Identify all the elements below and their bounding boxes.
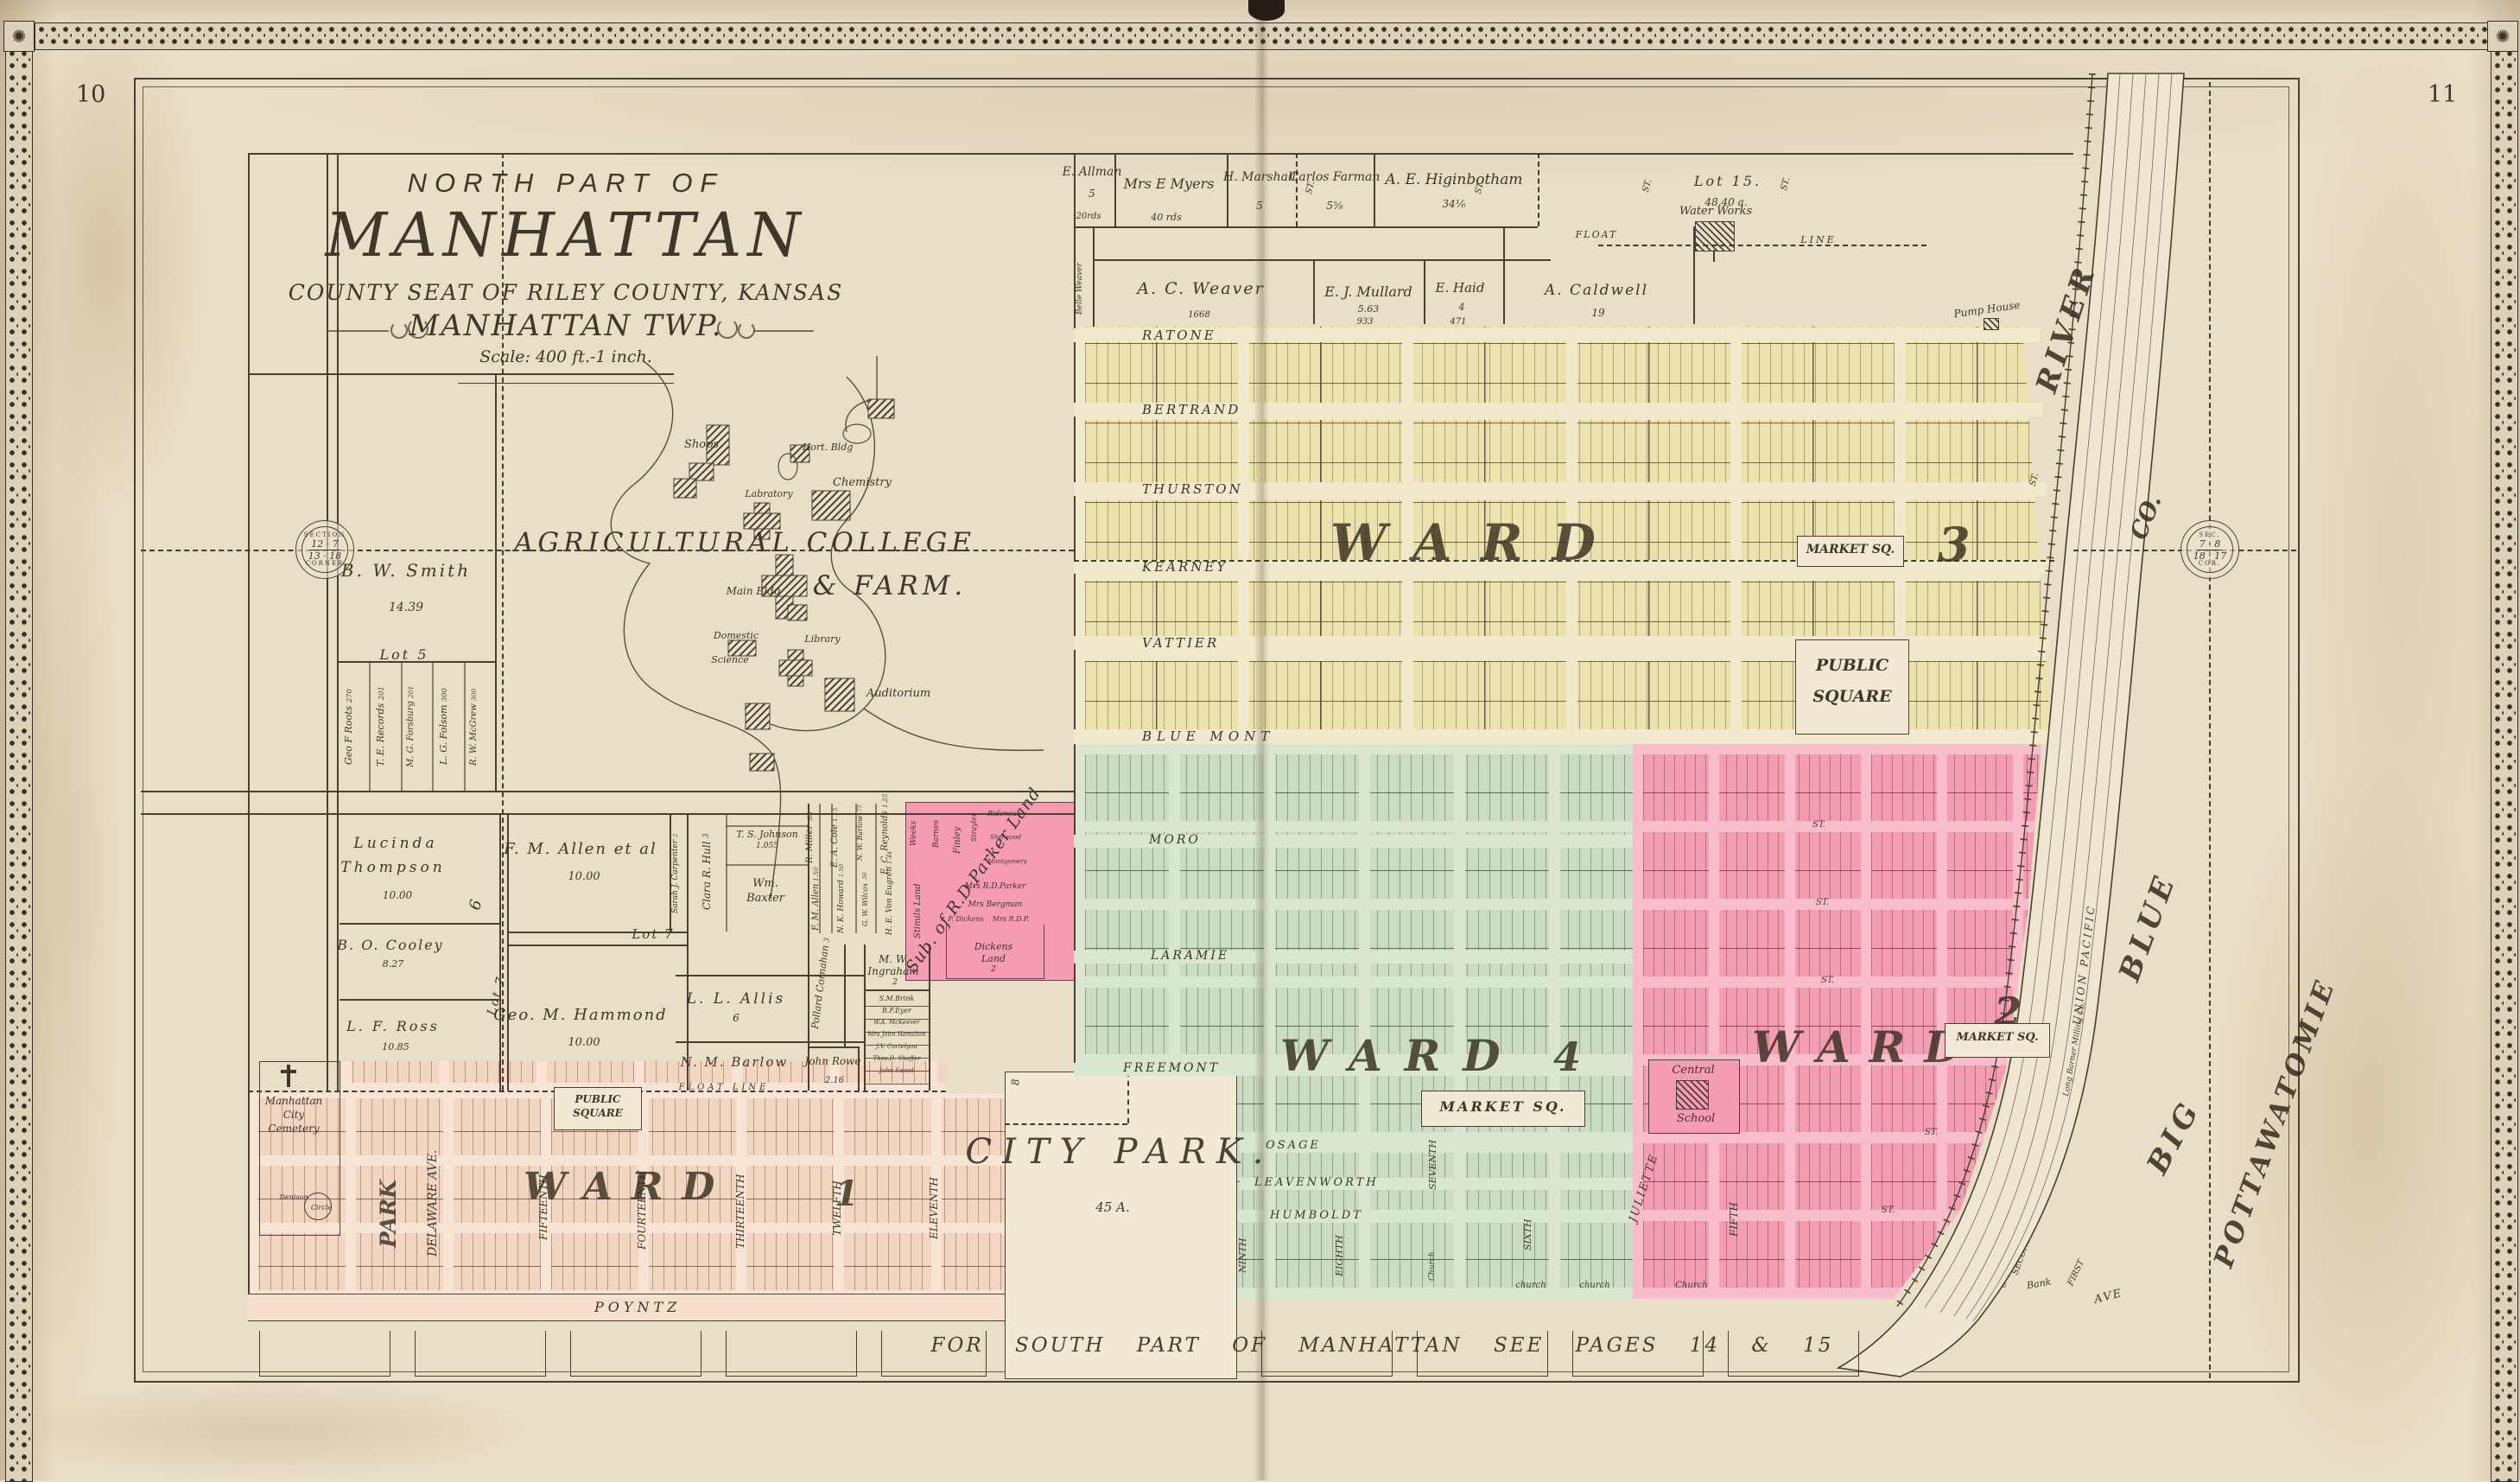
street-bertrand: BERTRAND [1142,402,1241,417]
parcel-ac-weaver: A. C. Weaver [1137,281,1264,298]
park-notch-h [1005,1123,1127,1125]
market-sq-text: MARKET SQ. [1422,1098,1584,1115]
campus-drives [611,356,1044,899]
south-ghost-block [259,1331,390,1377]
float-line-label: FLOAT LINE [679,1084,770,1093]
bldg-labratory: Labratory [745,489,792,499]
farm-divider-dashed [1538,153,1539,226]
flourish-icon [408,318,428,339]
flourish-icon [738,321,755,339]
bldg-chemistry: Chemistry [833,477,892,489]
parcel-farman: Carlos Farman [1290,171,1381,184]
row2-north [1093,259,1551,261]
parcel-allis-acres: 6 [733,1013,739,1024]
parcel-haid-num: 471 [1450,318,1466,328]
cemetery-label3: Cemetery [268,1123,319,1135]
rowe-north [808,1046,858,1048]
title-line1: NORTH PART OF [408,169,725,198]
row2-divider [1503,226,1505,324]
dickens-land-acres: 2 [991,966,996,974]
bldg-domestic: Domestic [714,631,759,641]
college-name2: & FARM. [813,572,968,601]
parcel-caldwell-acres: 19 [1591,308,1604,319]
sliver-owner: W.A. McKeever [873,1020,920,1026]
bldg-science: Science [711,655,748,665]
south-ghost-block [415,1331,546,1377]
parcel-higinbotham-acres: 34⅙ [1443,199,1466,210]
street-eleventh: ELEVENTH [929,1154,939,1263]
farm-divider [1114,153,1116,226]
water-works-stem [1713,250,1715,262]
parcel-nm-barlow: N. M. Barlow [681,1056,788,1070]
parcel-caldwell: A. Caldwell [1545,283,1648,299]
market-sq-text: MARKET SQ. [1946,1031,2049,1044]
parcel-hammond: Geo. M. Hammond [493,1008,667,1024]
street-delaware-ave: DELAWARE AVE. [427,1123,439,1283]
atlas-page: ✺ ✺ 10 11 [0,0,2520,1480]
flourish-icon [390,321,408,339]
lot5-sliver-line [432,661,434,791]
parcel-thompson: Lucinda [353,836,437,852]
fold-notch [1248,0,1285,21]
page-number-right: 11 [2428,83,2457,107]
parcel-allman-acres: 5 [1089,188,1095,200]
parcel-lot15: Lot 15. [1694,175,1761,189]
ingraham-south [864,989,929,991]
market-square-ward2: MARKET SQ. [1945,1023,2050,1058]
parcel-rowe-acres: 2.16 [825,1077,844,1086]
title-main: MANHATTAN [326,204,807,268]
allis-south [676,1041,864,1043]
farm-strip-south [1074,226,1538,228]
allis-north [676,975,864,976]
public-square-text2: SQUARE [1796,687,1908,706]
church-label: church [1515,1282,1546,1291]
water-works-label: Water Works [1679,206,1752,218]
central-school-label2: School [1677,1113,1715,1125]
street-ninth: NINTH [1238,1225,1247,1286]
parcel-myers-note: 40 rds [1151,213,1181,223]
water-works-building [1695,221,1735,251]
market-sq-text: MARKET SQ. [1798,543,1903,557]
ward3-label: WARD [1330,513,1625,572]
lot5-sliver-line [369,661,371,791]
street-osage: OSAGE [1266,1139,1321,1152]
south-ghost-block [726,1331,857,1377]
parcel-farman-acres: 5⅝ [1326,200,1343,212]
flourish-line [753,330,814,332]
cemetery-label2: City [283,1110,305,1121]
sliver-owner: J.V. Cortelyou [876,1044,917,1050]
ward4-number: 4 [1553,1034,1581,1080]
street-humboldt: HUMBOLDT [1270,1209,1363,1222]
sliver-east [929,945,930,1091]
row2-divider [1093,226,1095,327]
street-sixth: SIXTH [1523,1208,1533,1262]
bldg-main: Main Bldg [727,586,781,597]
street-fifth: FIFTH [1729,1186,1739,1253]
parcel-allis: L. L. Allis [687,992,786,1008]
market-square-ward4: MARKET SQ. [1421,1091,1585,1127]
sliver-owner: Thos.D. Shaffer [873,1056,921,1062]
parcel-rowe: John Rowe [805,1056,861,1067]
farm-divider [1374,153,1375,226]
parcel-myers: Mrs E Myers [1124,177,1215,192]
street-vattier: VATTIER [1142,635,1219,651]
border-left [5,22,33,1482]
hammond-north [507,945,687,946]
street-laramie: LARAMIE [1151,949,1229,963]
parcel-smith: B. W. Smith [341,562,471,580]
denison-label1: Denison [280,1194,308,1201]
public-square-text2: SQUARE [555,1107,641,1119]
parcel-ross: L. F. Ross [346,1020,440,1034]
bldg-shops: Shops [684,439,719,451]
lot5-label: Lot 5 [380,648,429,663]
page-number-left: 10 [76,83,105,107]
street-leavenworth: LEAVENWORTH [1254,1176,1379,1189]
sliver-owner: Mrs John Hamilton [867,1032,926,1038]
cornahan-east [844,945,846,1046]
ward1-number: 1 [835,1174,859,1214]
public-square-ward1: PUBLIC SQUARE [554,1087,642,1130]
parcel-allman-note: 20rds [1076,213,1101,222]
bldg-library: Library [804,634,840,645]
cooley-north [340,923,499,925]
parcel-mullard-num: 933 [1356,318,1373,328]
parcel-smith-acres: 14.39 [389,601,423,614]
flourish-line [328,330,389,332]
parcel-thompson2: Thompson [340,861,445,876]
farm-divider-dashed [1296,153,1298,226]
parcel-cooley: B. O. Cooley [337,938,443,953]
county-line [2209,82,2211,1378]
college-grounds [484,346,1089,899]
parcel-haid: E. Haid [1436,282,1485,296]
section-corner-seal-right: SEC. 7 · 8 18 · 17 COR. [2180,520,2239,579]
sliver-owner: John Sweet [879,1068,914,1074]
cemetery-cross-icon [287,1065,290,1087]
street-thirteenth: THIRTEENTH [735,1151,746,1272]
float-label: FLOAT [1576,230,1618,240]
market-square-ward3: MARKET SQ. [1797,536,1904,567]
street-seventh: SEVENTH [1428,1123,1438,1205]
street-freemont: FREEMONT [1123,1061,1220,1075]
line-label: LINE [1800,235,1836,245]
church-label: church [1579,1282,1609,1291]
parcel-folsom: L. G. Folsom 300 [439,667,448,786]
central-school-label1: Central [1672,1065,1714,1077]
ross-north [340,999,499,1001]
parcel-ingraham-acres: 2 [892,979,898,987]
parcel-roots: Geo F Roots 270 [344,667,353,786]
border-corner-rosette-left: ✺ [3,21,35,52]
college-name: AGRICULTURAL COLLEGE [514,529,975,557]
street-ratone: RATONE [1142,328,1216,343]
city-park-lot-number: 8 [1011,1078,1022,1085]
street-eighth: EIGHTH [1335,1225,1344,1286]
ward4-label: WARD [1280,1030,1523,1081]
dickens-land1: Dickens [974,942,1012,952]
title-line4: MANHATTAN TWP. [409,311,722,342]
parcel-belle-weaver: Belle Weaver [1076,258,1084,320]
lot5-sliver-line [464,661,466,791]
public-square-text1: PUBLIC [555,1093,641,1105]
street-thurston: THURSTON [1142,481,1243,497]
parcel-mullard: E. J. Mullard [1324,285,1412,300]
lot7-label: Lot 7 [632,928,674,942]
park-notch-v [1127,1072,1129,1123]
city-park-label: CITY PARK. [965,1134,1273,1170]
city-park-acres: 45 A. [1095,1201,1129,1215]
border-corner-rosette-right: ✺ [2487,21,2518,52]
plat-west-line [248,153,250,1294]
bldg-hort: Hort. Bldg [803,442,854,453]
parcel-rdp: Mrs R.D.P. [993,916,1029,923]
flourish-icon [717,318,738,339]
church-label-vertical: Church [1429,1243,1437,1290]
parcel-allman: E. Allman [1063,166,1122,179]
denison-label2: Circle [311,1205,332,1212]
parcel-forsburg: M. G. Forsburg 201 [407,667,416,786]
parcel-bergman: Mrs Bergman [968,901,1023,909]
parcel-hammond-acres: 10.00 [568,1037,600,1049]
parcel-ross-acres: 10.85 [382,1042,409,1053]
ward3-number: 3 [1938,517,1971,572]
see-pages-note: FOR SOUTH PART OF MANHATTAN SEE PAGES 14… [931,1335,1834,1356]
city-park [1005,1072,1237,1379]
farm-divider [1227,153,1228,226]
ward1-label: WARD [524,1165,733,1209]
central-school-building [1676,1080,1709,1110]
street-moro: MORO [1149,833,1201,847]
title-line3: COUNTY SEAT OF RILEY COUNTY, KANSAS [289,282,844,304]
dickens-land2: Land [981,954,1006,964]
parcel-higinbotham: A. E. Higinbotham [1386,173,1523,188]
row2-divider [1424,259,1425,324]
page-fold [1254,0,1270,1480]
plat-north-line [248,153,2073,155]
parcel-thompson-acres: 10.00 [383,890,412,901]
row2-divider [1313,259,1315,324]
parcel-mullard-acres: 5.63 [1358,304,1380,315]
parcel-mcgrew: R. W. McGrew 300 [470,667,479,786]
public-square-ward3: PUBLIC SQUARE [1795,639,1909,735]
bldg-auditorium: Auditorium [866,688,930,700]
church-label-ward2: Church [1675,1282,1707,1291]
public-square-text1: PUBLIC [1796,656,1908,675]
sliver-owner: S.M.Brink [879,995,915,1002]
lot5-sliver-line [401,661,403,791]
street-poyntz: POYNTZ [594,1299,681,1315]
border-right [2491,22,2518,1482]
pump-house-building [1984,318,1999,330]
parcel-ac-weaver-num: 1668 [1188,311,1209,321]
parcel-cooley-acres: 8.27 [383,959,404,970]
street-park-ave: PARK [378,1162,399,1266]
cemetery-label1: Manhattan [265,1096,323,1107]
parcel-haid-acres: 4 [1459,302,1465,313]
parcel-records: T. E. Records 201 [376,667,385,786]
rowe-east [858,1046,860,1091]
south-ghost-block [570,1331,701,1377]
sliver-owner: B.F.Eyer [882,1008,911,1015]
